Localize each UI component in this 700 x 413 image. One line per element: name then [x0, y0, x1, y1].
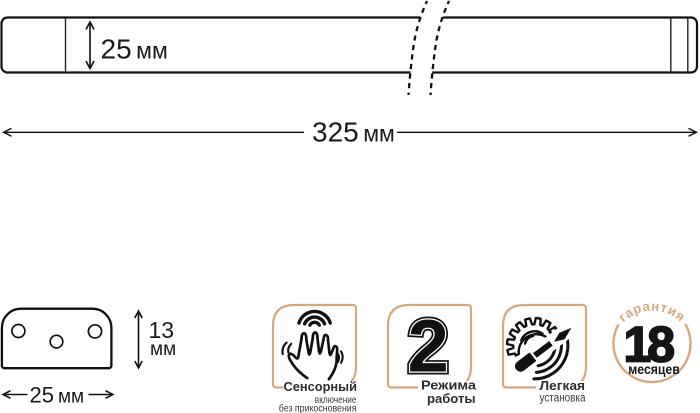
svg-text:месяцев: месяцев: [628, 362, 680, 377]
svg-text:работы: работы: [427, 392, 476, 406]
svg-text:установка: установка: [540, 393, 587, 405]
svg-text:Режима: Режима: [421, 379, 477, 393]
svg-text:без прикосновения: без прикосновения: [279, 402, 357, 413]
svg-text:Легкая: Легкая: [540, 379, 586, 393]
svg-text:25мм: 25мм: [30, 383, 85, 408]
svg-text:Сенсорный: Сенсорный: [284, 380, 358, 394]
svg-text:325мм: 325мм: [312, 117, 395, 148]
svg-text:мм: мм: [150, 339, 176, 360]
svg-text:2: 2: [408, 305, 449, 388]
